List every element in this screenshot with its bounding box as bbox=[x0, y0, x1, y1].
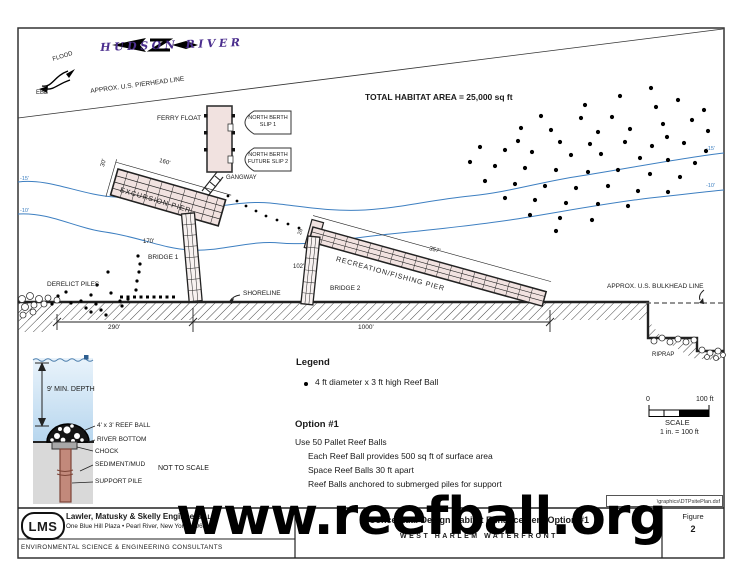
contour-15-right: -15' bbox=[706, 146, 715, 152]
option-line2: Each Reef Ball provides 500 sq ft of sur… bbox=[308, 452, 493, 462]
gangway-label: GANGWAY bbox=[226, 175, 257, 182]
drawing-sheet: HUDSON RIVER FLOOD EBB APPROX. U.S. PIER… bbox=[0, 0, 743, 567]
shoreline-band bbox=[18, 302, 724, 361]
watermark: www.reefball.org bbox=[176, 487, 666, 547]
ferry-float-label: FERRY FLOAT bbox=[157, 115, 201, 122]
berth1-callout: NORTH BERTH SLIP 1 bbox=[245, 115, 291, 129]
shore-pile-ticks bbox=[120, 296, 175, 299]
bridge2-label: BRIDGE 2 bbox=[330, 285, 360, 292]
figure-number: 2 bbox=[664, 524, 722, 534]
riprap-label: RIPRAP bbox=[652, 352, 674, 359]
bulkhead-line bbox=[646, 290, 723, 304]
derelict-piles-label: DERELICT PILES bbox=[47, 281, 99, 288]
min-depth-label: 9' MIN. DEPTH bbox=[47, 386, 95, 394]
contour-10-left: -10' bbox=[20, 208, 29, 214]
river-bottom-label: RIVER BOTTOM bbox=[97, 436, 146, 443]
bridge1-label: BRIDGE 1 bbox=[148, 254, 178, 261]
gangway-structure bbox=[202, 172, 223, 196]
ebb-label: EBB bbox=[36, 90, 48, 97]
scale-ratio: 1 in. = 100 ft bbox=[660, 429, 699, 437]
habitat-area-note: TOTAL HABITAT AREA = 25,000 sq ft bbox=[365, 93, 513, 103]
legend-bullet-dot bbox=[304, 382, 308, 386]
bulkhead-line-label: APPROX. U.S. BULKHEAD LINE bbox=[607, 283, 703, 290]
ferry-float-structure bbox=[204, 106, 235, 172]
reef-ball-detail-inset bbox=[33, 355, 95, 504]
reef-ball-label: 4' x 3' REEF BALL bbox=[97, 422, 150, 429]
chock-label: CHOCK bbox=[95, 448, 118, 455]
lms-logo: LMS bbox=[21, 512, 65, 540]
option-line1: Use 50 Pallet Reef Balls bbox=[295, 438, 387, 448]
legend-item: 4 ft diameter x 3 ft high Reef Ball bbox=[315, 378, 438, 388]
scale-zero: 0 bbox=[646, 396, 650, 404]
bridge1-structure bbox=[182, 213, 203, 302]
not-to-scale-label: NOT TO SCALE bbox=[158, 465, 209, 473]
dim-170: 170' bbox=[143, 239, 154, 246]
reef-ball-dots bbox=[468, 86, 710, 233]
figure-label: Figure bbox=[664, 513, 722, 522]
scale-label: SCALE bbox=[665, 419, 690, 428]
dim-102: 102' bbox=[293, 264, 304, 271]
scale-hundred: 100 ft bbox=[696, 396, 714, 404]
scale-bar bbox=[649, 405, 709, 417]
berth2-callout: NORTH BERTH FUTURE SLIP 2 bbox=[245, 152, 291, 166]
sediment-label: SEDIMENT/MUD bbox=[95, 461, 145, 468]
shoreline-label: SHORELINE bbox=[243, 290, 281, 297]
option-title: Option #1 bbox=[295, 420, 339, 431]
pile-trail-dots bbox=[227, 195, 301, 230]
option-line3: Space Reef Balls 30 ft apart bbox=[308, 466, 414, 476]
dim-290: 290' bbox=[108, 324, 120, 331]
support-pile-label: SUPPORT PILE bbox=[95, 478, 142, 485]
legend-title: Legend bbox=[296, 358, 330, 369]
dim-1000: 1000' bbox=[358, 324, 374, 331]
contour-15-left: -15' bbox=[20, 176, 29, 182]
contour-10-right: -10' bbox=[706, 183, 715, 189]
